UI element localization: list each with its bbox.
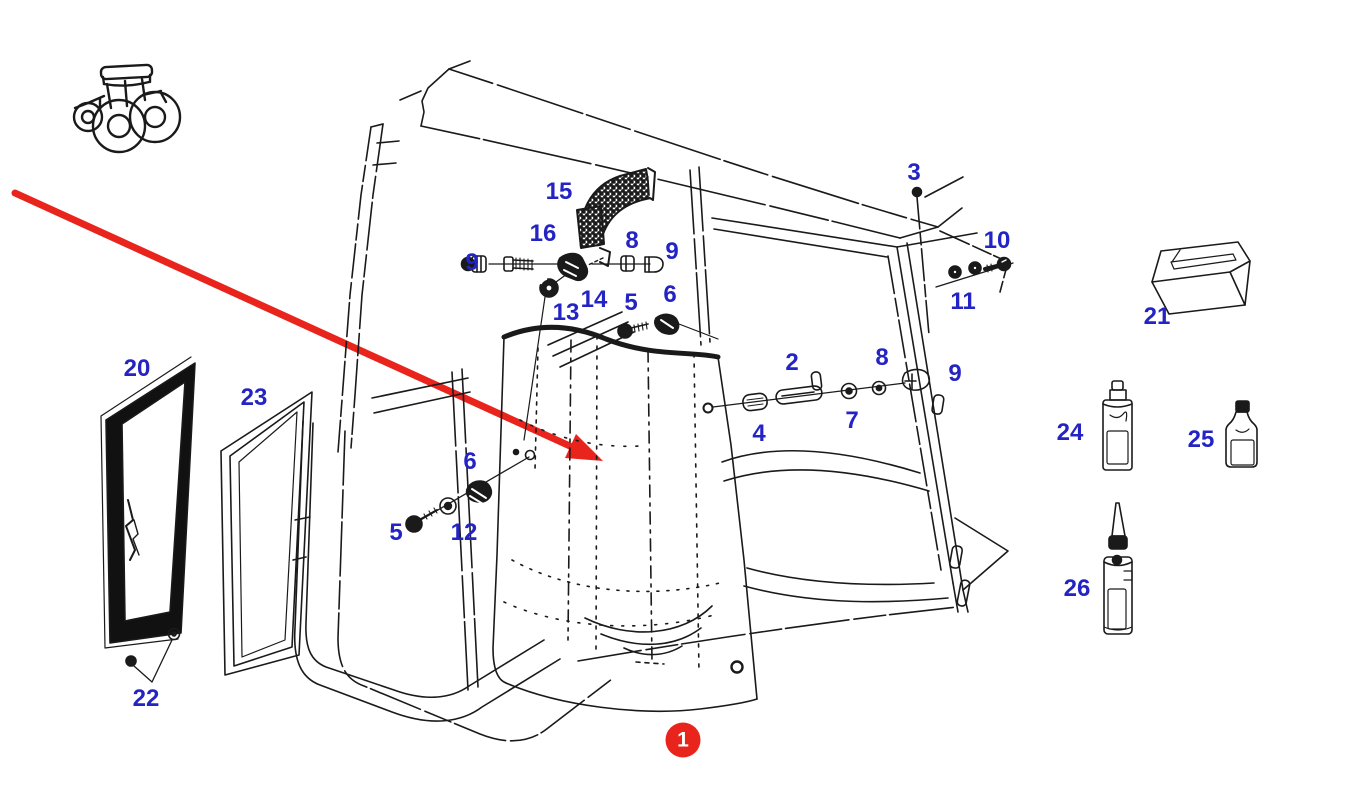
part-1-badge: 1 xyxy=(666,723,701,758)
sealant-part-26 xyxy=(1104,503,1132,634)
callout-label-25: 25 xyxy=(1188,428,1215,452)
latch-hardware-row xyxy=(713,370,929,412)
callout-label-21: 21 xyxy=(1144,305,1171,329)
callout-label-20: 20 xyxy=(124,357,151,381)
cartridge-part-24 xyxy=(1103,381,1132,470)
callout-label-4: 4 xyxy=(752,422,765,446)
callout-label-6: 6 xyxy=(663,283,676,307)
pointer-arrow xyxy=(15,193,603,461)
callout-label-10: 10 xyxy=(984,229,1011,253)
window-frame-part-23 xyxy=(221,392,312,675)
callout-label-9: 9 xyxy=(465,251,478,275)
washer-bolt-row-10-11 xyxy=(936,258,1013,288)
callout-label-9: 9 xyxy=(948,362,961,386)
callout-label-5: 5 xyxy=(389,521,402,545)
callout-label-8: 8 xyxy=(875,346,888,370)
callout-label-12: 12 xyxy=(451,521,478,545)
diagram-line-art xyxy=(0,0,1346,791)
parts-diagram-canvas: 1516989131456310112894720236512222124252… xyxy=(0,0,1346,791)
cab-frame-drawing xyxy=(293,61,1008,741)
callout-label-3: 3 xyxy=(907,161,920,185)
callout-label-11: 11 xyxy=(950,290,975,314)
roof-handle-part-15 xyxy=(577,168,655,266)
callout-label-6: 6 xyxy=(463,450,476,474)
callout-label-9: 9 xyxy=(665,240,678,264)
callout-label-7: 7 xyxy=(845,409,858,433)
callout-label-2: 2 xyxy=(785,351,798,375)
callout-label-5: 5 xyxy=(624,291,637,315)
callout-label-14: 14 xyxy=(581,288,608,312)
callout-label-24: 24 xyxy=(1057,421,1084,445)
bottle-part-25 xyxy=(1226,401,1257,467)
callout-label-26: 26 xyxy=(1064,577,1091,601)
callout-label-23: 23 xyxy=(241,386,268,410)
callout-label-15: 15 xyxy=(546,180,573,204)
window-seal-part-20 xyxy=(101,357,195,648)
tractor-icon xyxy=(74,65,180,152)
bolt-socket-row-5-6 xyxy=(618,314,718,339)
callout-label-22: 22 xyxy=(133,687,160,711)
callout-label-13: 13 xyxy=(553,301,580,325)
callout-label-16: 16 xyxy=(530,222,557,246)
callout-label-8: 8 xyxy=(625,229,638,253)
